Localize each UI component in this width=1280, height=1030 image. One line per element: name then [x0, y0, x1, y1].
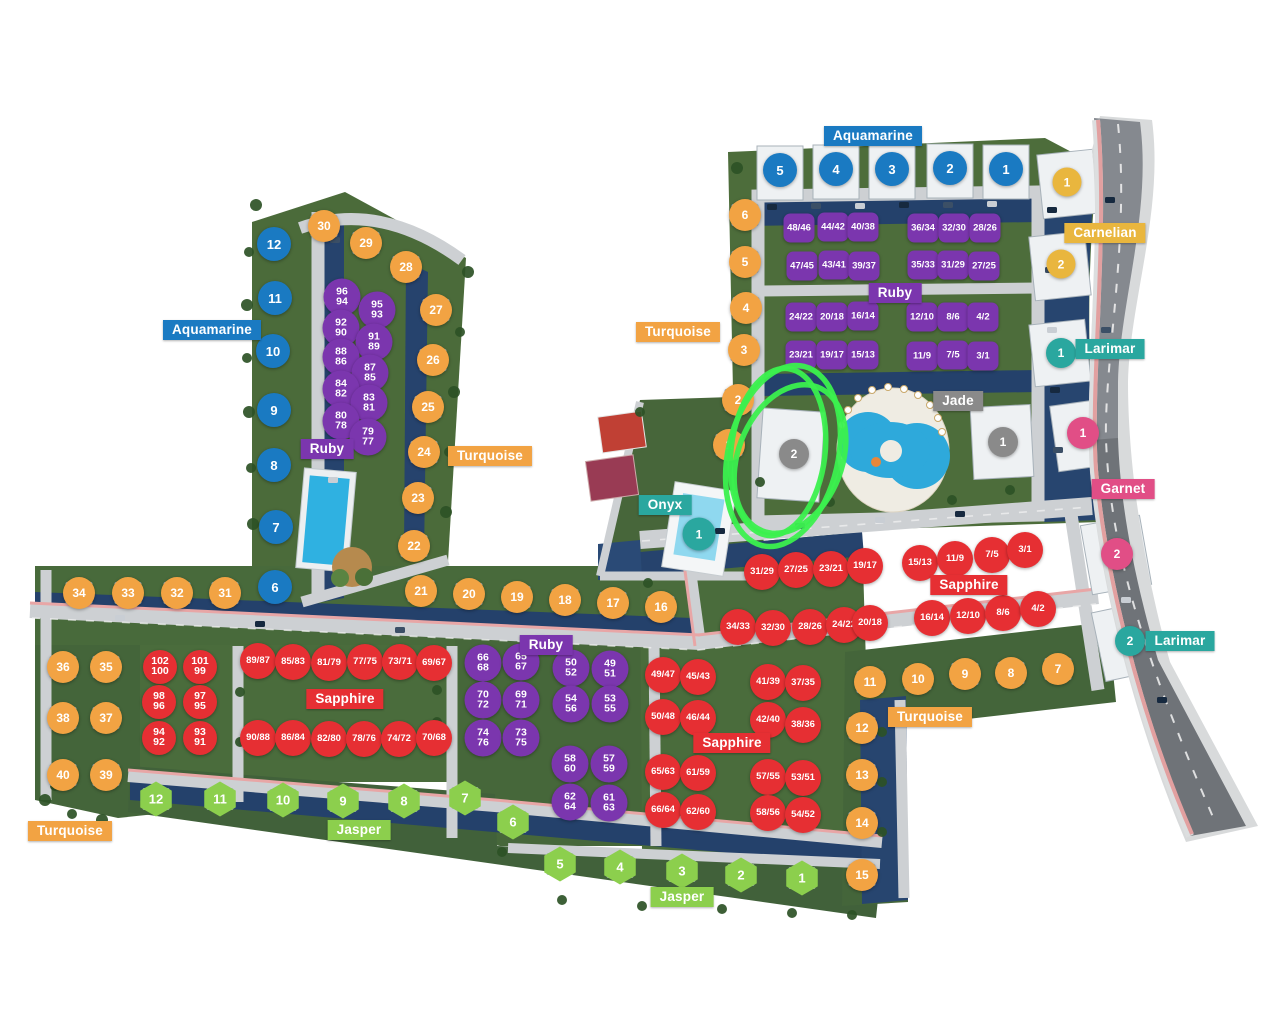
turquoise-villa-unit-12[interactable]: 12 [846, 712, 878, 744]
sapphire-villa-unit-89-87[interactable]: 89/87 [240, 643, 276, 679]
resort-site-plan: 5432112111098763029282726252423222120191… [0, 0, 1280, 1030]
ruby-duplex-unit-23-21[interactable]: 23/21 [786, 341, 817, 370]
turquoise-villa-unit-18[interactable]: 18 [549, 584, 581, 616]
turquoise-villa-unit-5[interactable]: 5 [729, 246, 761, 278]
sapphire-villa-unit-11-9[interactable]: 11/9 [937, 541, 973, 577]
sapphire-villa-unit-23-21[interactable]: 23/21 [813, 551, 849, 587]
sapphire-villa-unit-81-79[interactable]: 81/79 [311, 645, 347, 681]
sapphire-villa-unit-78-76[interactable]: 78/76 [346, 721, 382, 757]
ruby-villa-unit-57-59[interactable]: 5759 [591, 746, 628, 783]
zone-label-turquoise: Turquoise [28, 821, 112, 841]
sapphire-villa-stacked-unit-98-96[interactable]: 9896 [142, 685, 176, 719]
jasper-villa-unit-3[interactable]: 3 [665, 854, 700, 889]
sapphire-villa-unit-70-68[interactable]: 70/68 [416, 720, 452, 756]
ruby-duplex-unit-44-42[interactable]: 44/42 [818, 213, 849, 242]
turquoise-villa-unit-8[interactable]: 8 [995, 657, 1027, 689]
sapphire-villa-unit-54-52[interactable]: 54/52 [785, 797, 821, 833]
ruby-duplex-unit-20-18[interactable]: 20/18 [817, 303, 848, 332]
ruby-villa-unit-66-68[interactable]: 6668 [465, 645, 502, 682]
zone-label-ruby: Ruby [520, 635, 573, 655]
ruby-duplex-unit-8-6[interactable]: 8/6 [938, 303, 969, 332]
turquoise-villa-unit-31[interactable]: 31 [209, 577, 241, 609]
sapphire-villa-unit-61-59[interactable]: 61/59 [680, 755, 716, 791]
turquoise-villa-unit-13[interactable]: 13 [846, 759, 878, 791]
jasper-villa-unit-12[interactable]: 12 [139, 782, 174, 817]
ruby-duplex-unit-24-22[interactable]: 24/22 [786, 303, 817, 332]
ruby-duplex-unit-3-1[interactable]: 3/1 [968, 342, 999, 371]
garnet-building-unit-2[interactable]: 2 [1101, 538, 1133, 570]
sapphire-villa-unit-41-39[interactable]: 41/39 [750, 664, 786, 700]
zone-label-larimar: Larimar [1076, 339, 1145, 359]
sapphire-villa-unit-16-14[interactable]: 16/14 [914, 600, 950, 636]
zone-label-aquamarine: Aquamarine [163, 320, 261, 340]
turquoise-villa-unit-19[interactable]: 19 [501, 581, 533, 613]
turquoise-villa-unit-26[interactable]: 26 [417, 344, 449, 376]
jasper-villa-unit-9[interactable]: 9 [326, 784, 361, 819]
turquoise-villa-unit-29[interactable]: 29 [350, 227, 382, 259]
turquoise-villa-unit-33[interactable]: 33 [112, 577, 144, 609]
jasper-villa-unit-8[interactable]: 8 [387, 784, 422, 819]
ruby-villa-unit-53-55[interactable]: 5355 [592, 686, 629, 723]
sapphire-villa-unit-74-72[interactable]: 74/72 [381, 721, 417, 757]
ruby-villa-unit-62-64[interactable]: 6264 [552, 784, 589, 821]
ruby-duplex-unit-31-29[interactable]: 31/29 [938, 251, 969, 280]
turquoise-villa-unit-7[interactable]: 7 [1042, 653, 1074, 685]
sapphire-villa-unit-19-17[interactable]: 19/17 [847, 548, 883, 584]
ruby-villa-unit-69-71[interactable]: 6971 [503, 682, 540, 719]
aquamarine-building-unit-6[interactable]: 6 [258, 570, 292, 604]
sapphire-villa-unit-86-84[interactable]: 86/84 [275, 720, 311, 756]
zone-label-jasper: Jasper [328, 820, 391, 840]
turquoise-villa-unit-23[interactable]: 23 [402, 482, 434, 514]
ruby-duplex-unit-7-5[interactable]: 7/5 [938, 341, 969, 370]
onyx-building-unit-1[interactable]: 1 [683, 518, 716, 551]
sapphire-villa-unit-28-26[interactable]: 28/26 [792, 609, 828, 645]
aquamarine-building-unit-7[interactable]: 7 [259, 510, 293, 544]
aquamarine-building-unit-3[interactable]: 3 [875, 152, 909, 186]
sapphire-villa-unit-37-35[interactable]: 37/35 [785, 665, 821, 701]
turquoise-villa-unit-14[interactable]: 14 [846, 807, 878, 839]
sapphire-villa-unit-32-30[interactable]: 32/30 [755, 610, 791, 646]
sapphire-villa-stacked-unit-102-100[interactable]: 102100 [143, 650, 177, 684]
carnelian-building-unit-1[interactable]: 1 [1053, 168, 1082, 197]
sapphire-villa-unit-38-36[interactable]: 38/36 [785, 707, 821, 743]
turquoise-villa-unit-10[interactable]: 10 [902, 663, 934, 695]
sapphire-villa-unit-53-51[interactable]: 53/51 [785, 760, 821, 796]
zone-label-turquoise: Turquoise [888, 707, 972, 727]
sapphire-villa-unit-57-55[interactable]: 57/55 [750, 759, 786, 795]
zone-label-jade: Jade [933, 391, 983, 411]
turquoise-villa-unit-38[interactable]: 38 [47, 702, 79, 734]
turquoise-villa-unit-6[interactable]: 6 [729, 199, 761, 231]
turquoise-villa-unit-36[interactable]: 36 [47, 651, 79, 683]
ruby-duplex-unit-35-33[interactable]: 35/33 [908, 251, 939, 280]
sapphire-villa-stacked-unit-97-95[interactable]: 9795 [183, 685, 217, 719]
ruby-villa-unit-73-75[interactable]: 7375 [503, 720, 540, 757]
jasper-villa-unit-4[interactable]: 4 [603, 850, 638, 885]
jasper-villa-unit-1[interactable]: 1 [785, 861, 820, 896]
aquamarine-building-unit-9[interactable]: 9 [257, 393, 291, 427]
larimar-building-unit-2[interactable]: 2 [1115, 626, 1145, 656]
ruby-duplex-unit-4-2[interactable]: 4/2 [968, 303, 999, 332]
turquoise-villa-unit-30[interactable]: 30 [308, 210, 340, 242]
ruby-duplex-unit-32-30[interactable]: 32/30 [939, 214, 970, 243]
sapphire-villa-unit-77-75[interactable]: 77/75 [347, 644, 383, 680]
ruby-duplex-unit-40-38[interactable]: 40/38 [848, 213, 879, 242]
turquoise-villa-unit-15[interactable]: 15 [846, 859, 878, 891]
sapphire-villa-unit-45-43[interactable]: 45/43 [680, 659, 716, 695]
jasper-villa-unit-7[interactable]: 7 [448, 781, 483, 816]
ruby-villa-unit-49-51[interactable]: 4951 [592, 651, 629, 688]
ruby-duplex-unit-16-14[interactable]: 16/14 [848, 302, 879, 331]
aquamarine-building-unit-10[interactable]: 10 [256, 334, 290, 368]
ruby-villa-unit-54-56[interactable]: 5456 [553, 686, 590, 723]
turquoise-villa-unit-16[interactable]: 16 [645, 591, 677, 623]
larimar-building-unit-1[interactable]: 1 [1046, 338, 1076, 368]
sapphire-villa-unit-46-44[interactable]: 46/44 [680, 700, 716, 736]
carnelian-building-unit-2[interactable]: 2 [1047, 250, 1076, 279]
turquoise-villa-unit-32[interactable]: 32 [161, 577, 193, 609]
ruby-duplex-unit-19-17[interactable]: 19/17 [817, 341, 848, 370]
turquoise-villa-unit-21[interactable]: 21 [405, 575, 437, 607]
zone-label-sapphire: Sapphire [306, 689, 383, 709]
sapphire-villa-unit-62-60[interactable]: 62/60 [680, 794, 716, 830]
jasper-villa-unit-6[interactable]: 6 [496, 805, 531, 840]
sapphire-villa-unit-69-67[interactable]: 69/67 [416, 645, 452, 681]
turquoise-villa-unit-4[interactable]: 4 [730, 292, 762, 324]
turquoise-villa-unit-28[interactable]: 28 [390, 251, 422, 283]
jasper-villa-unit-10[interactable]: 10 [266, 783, 301, 818]
ruby-villa-unit-70-72[interactable]: 7072 [465, 682, 502, 719]
turquoise-villa-unit-37[interactable]: 37 [90, 702, 122, 734]
sapphire-villa-unit-3-1[interactable]: 3/1 [1007, 532, 1043, 568]
aquamarine-building-unit-1[interactable]: 1 [989, 152, 1023, 186]
markers-layer: 5432112111098763029282726252423222120191… [0, 0, 1280, 1030]
turquoise-villa-unit-39[interactable]: 39 [90, 759, 122, 791]
ruby-duplex-unit-36-34[interactable]: 36/34 [908, 214, 939, 243]
sapphire-villa-unit-66-64[interactable]: 66/64 [645, 792, 681, 828]
turquoise-villa-unit-11[interactable]: 11 [854, 666, 886, 698]
aquamarine-building-unit-2[interactable]: 2 [933, 151, 967, 185]
aquamarine-building-unit-5[interactable]: 5 [763, 153, 797, 187]
zone-label-ruby: Ruby [301, 439, 354, 459]
ruby-villa-unit-61-63[interactable]: 6163 [591, 785, 628, 822]
ruby-villa-unit-58-60[interactable]: 5860 [552, 746, 589, 783]
turquoise-villa-unit-24[interactable]: 24 [408, 436, 440, 468]
ruby-duplex-unit-12-10[interactable]: 12/10 [907, 303, 938, 332]
zone-label-jasper: Jasper [651, 887, 714, 907]
jade-building-unit-2[interactable]: 2 [779, 439, 809, 469]
sapphire-villa-unit-65-63[interactable]: 65/63 [645, 754, 681, 790]
ruby-villa-unit-50-52[interactable]: 5052 [553, 650, 590, 687]
zone-label-carnelian: Carnelian [1064, 223, 1145, 243]
jade-building-unit-1[interactable]: 1 [988, 427, 1018, 457]
aquamarine-building-unit-11[interactable]: 11 [258, 281, 292, 315]
sapphire-villa-unit-4-2[interactable]: 4/2 [1020, 591, 1056, 627]
sapphire-villa-unit-50-48[interactable]: 50/48 [645, 699, 681, 735]
jasper-villa-unit-5[interactable]: 5 [543, 847, 578, 882]
ruby-villa-unit-79-77[interactable]: 7977 [350, 419, 387, 456]
sapphire-villa-unit-73-71[interactable]: 73/71 [382, 644, 418, 680]
sapphire-villa-stacked-unit-101-99[interactable]: 10199 [183, 650, 217, 684]
jasper-villa-unit-11[interactable]: 11 [203, 782, 238, 817]
sapphire-villa-unit-7-5[interactable]: 7/5 [974, 537, 1010, 573]
zone-label-sapphire: Sapphire [693, 733, 770, 753]
ruby-duplex-unit-47-45[interactable]: 47/45 [787, 252, 818, 281]
turquoise-villa-unit-17[interactable]: 17 [597, 587, 629, 619]
zone-label-ruby: Ruby [869, 283, 922, 303]
zone-label-turquoise: Turquoise [448, 446, 532, 466]
zone-label-larimar: Larimar [1146, 631, 1215, 651]
turquoise-villa-unit-1[interactable]: 1 [713, 429, 745, 461]
ruby-duplex-unit-11-9[interactable]: 11/9 [907, 342, 938, 371]
zone-label-aquamarine: Aquamarine [824, 126, 922, 146]
ruby-villa-unit-74-76[interactable]: 7476 [465, 720, 502, 757]
zone-label-garnet: Garnet [1092, 479, 1155, 499]
turquoise-villa-unit-9[interactable]: 9 [949, 658, 981, 690]
turquoise-villa-unit-25[interactable]: 25 [412, 391, 444, 423]
turquoise-villa-unit-34[interactable]: 34 [63, 577, 95, 609]
sapphire-villa-unit-34-33[interactable]: 34/33 [720, 609, 756, 645]
sapphire-villa-unit-82-80[interactable]: 82/80 [311, 721, 347, 757]
turquoise-villa-unit-20[interactable]: 20 [453, 578, 485, 610]
jasper-villa-unit-2[interactable]: 2 [724, 858, 759, 893]
sapphire-villa-unit-12-10[interactable]: 12/10 [950, 598, 986, 634]
turquoise-villa-unit-27[interactable]: 27 [420, 294, 452, 326]
sapphire-villa-unit-85-83[interactable]: 85/83 [275, 644, 311, 680]
zone-label-onyx: Onyx [639, 495, 692, 515]
turquoise-villa-unit-40[interactable]: 40 [47, 759, 79, 791]
turquoise-villa-unit-22[interactable]: 22 [398, 530, 430, 562]
ruby-duplex-unit-48-46[interactable]: 48/46 [784, 214, 815, 243]
ruby-duplex-unit-27-25[interactable]: 27/25 [969, 252, 1000, 281]
garnet-building-unit-1[interactable]: 1 [1067, 417, 1099, 449]
sapphire-villa-stacked-unit-94-92[interactable]: 9492 [142, 721, 176, 755]
sapphire-villa-unit-20-18[interactable]: 20/18 [852, 605, 888, 641]
ruby-duplex-unit-28-26[interactable]: 28/26 [970, 214, 1001, 243]
turquoise-villa-unit-2[interactable]: 2 [722, 384, 754, 416]
aquamarine-building-unit-12[interactable]: 12 [257, 227, 291, 261]
aquamarine-building-unit-4[interactable]: 4 [819, 152, 853, 186]
ruby-duplex-unit-15-13[interactable]: 15/13 [848, 341, 879, 370]
ruby-duplex-unit-39-37[interactable]: 39/37 [849, 252, 880, 281]
turquoise-villa-unit-3[interactable]: 3 [728, 334, 760, 366]
sapphire-villa-stacked-unit-93-91[interactable]: 9391 [183, 721, 217, 755]
zone-label-turquoise: Turquoise [636, 322, 720, 342]
sapphire-villa-unit-31-29[interactable]: 31/29 [744, 554, 780, 590]
ruby-duplex-unit-43-41[interactable]: 43/41 [819, 251, 850, 280]
aquamarine-building-unit-8[interactable]: 8 [257, 448, 291, 482]
sapphire-villa-unit-58-56[interactable]: 58/56 [750, 795, 786, 831]
sapphire-villa-unit-27-25[interactable]: 27/25 [778, 552, 814, 588]
zone-label-sapphire: Sapphire [930, 575, 1007, 595]
turquoise-villa-unit-35[interactable]: 35 [90, 651, 122, 683]
sapphire-villa-unit-49-47[interactable]: 49/47 [645, 657, 681, 693]
sapphire-villa-unit-90-88[interactable]: 90/88 [240, 720, 276, 756]
sapphire-villa-unit-8-6[interactable]: 8/6 [985, 595, 1021, 631]
